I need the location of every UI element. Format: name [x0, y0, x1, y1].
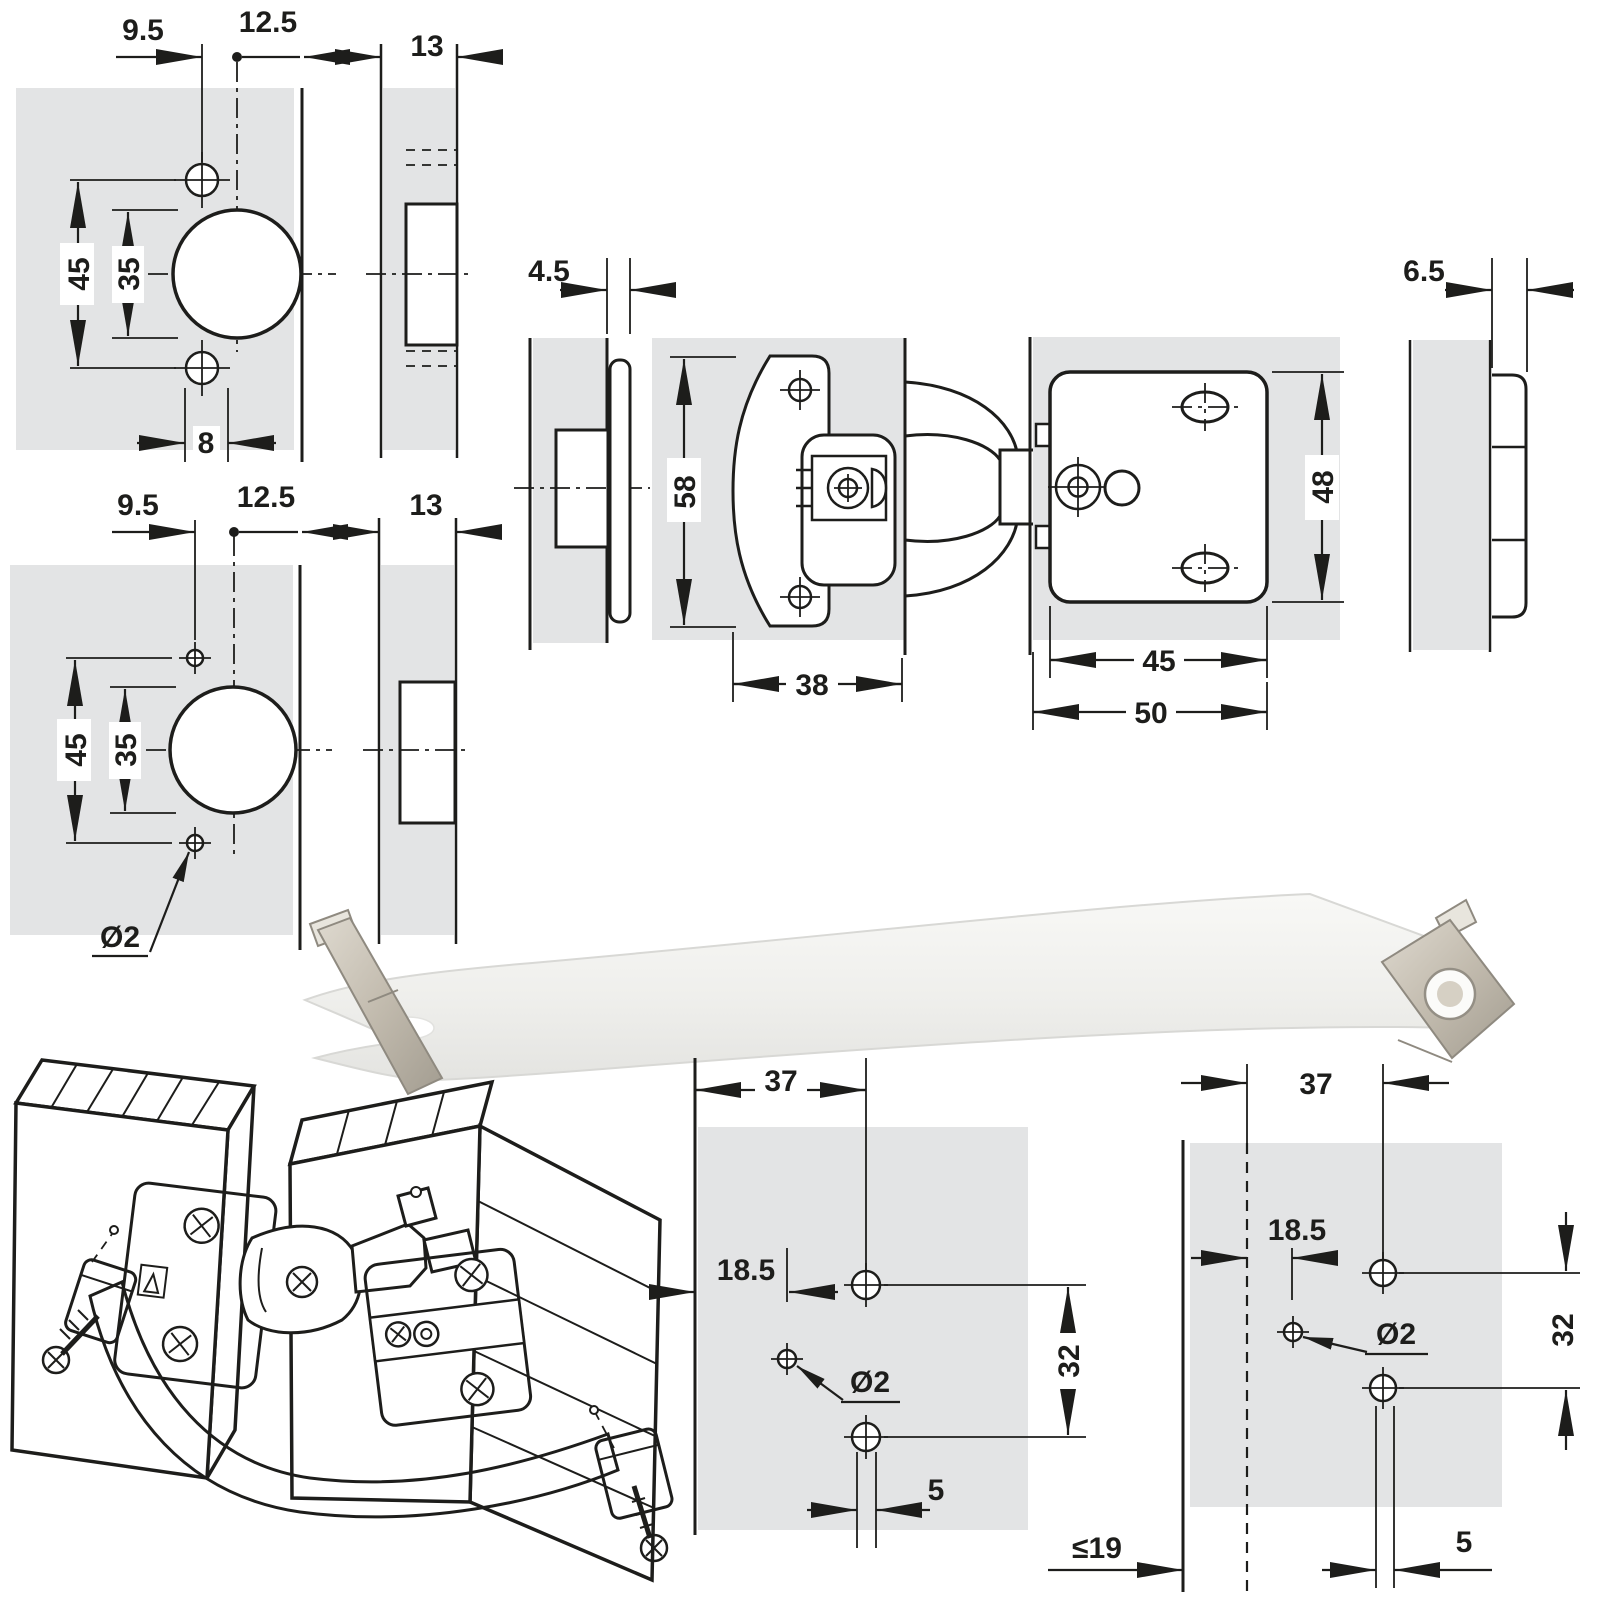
strap-drilling-cabinet-pattern: 37 18.5 Ø2 32 5 ≤19 — [1048, 1064, 1580, 1592]
dim-strap-cab-offset: 18.5 — [1268, 1214, 1326, 1247]
dim-edge-offset-top: 9.5 — [122, 14, 164, 47]
dim-door-thickness-top: 13 — [410, 30, 443, 63]
technical-drawing-page: 9.5 12.5 45 35 8 13 9.5 12.5 — [0, 0, 1600, 1600]
dim-strap-door-offset: 18.5 — [717, 1254, 775, 1287]
dim-pilot-diameter-bottom: Ø2 — [100, 921, 140, 954]
hinge-installation-drawing: 9.5 12.5 45 35 8 13 9.5 12.5 — [0, 0, 1600, 1600]
dim-strap-door-dia: Ø2 — [850, 1366, 890, 1399]
strap-band — [305, 894, 1455, 1080]
safety-strap-photo — [305, 894, 1514, 1094]
strap-drilling-door-pattern: 37 18.5 Ø2 32 5 — [652, 1058, 1086, 1548]
dim-cup-diameter-bottom: 35 — [110, 733, 143, 766]
dim-door-thickness-bottom: 13 — [409, 489, 442, 522]
dim-hole-spacing-bottom: 45 — [60, 733, 93, 766]
dim-strap-cab-width: 37 — [1299, 1068, 1332, 1101]
dim-strap-cab-gap: 5 — [1456, 1526, 1473, 1559]
hinge-assembly-view: 4.5 58 38 48 — [514, 255, 1574, 730]
cup-drilling-side-view-bottom: 13 — [344, 488, 490, 944]
dim-plate-height: 48 — [1307, 470, 1340, 503]
dim-strap-door-gap: 5 — [928, 1474, 945, 1507]
dim-strap-cab-spacing: 32 — [1547, 1313, 1580, 1346]
dim-max-panel-thickness: ≤19 — [1072, 1532, 1122, 1565]
cup-drilling-pattern-top: 9.5 12.5 45 35 8 — [16, 6, 358, 462]
dim-plate-overlay: 6.5 — [1403, 255, 1445, 288]
dim-screw-offset: 8 — [198, 427, 215, 460]
dim-plate-total-width: 50 — [1134, 697, 1167, 730]
dim-edge-offset-bottom: 9.5 — [117, 489, 159, 522]
dim-cup-to-edge-top: 12.5 — [239, 6, 297, 39]
dim-door-overlay: 4.5 — [528, 255, 570, 288]
cup-drilling-side-view-top: 13 — [346, 28, 492, 458]
dim-wing-depth: 38 — [795, 669, 828, 702]
dim-cup-to-edge-bottom: 12.5 — [237, 481, 295, 514]
cup-drilling-pattern-bottom: 9.5 12.5 45 35 Ø2 — [10, 481, 356, 956]
dim-strap-door-spacing: 32 — [1053, 1344, 1086, 1377]
dim-hole-spacing-top: 45 — [63, 257, 96, 290]
dim-strap-cab-dia: Ø2 — [1376, 1318, 1416, 1351]
dim-cup-diameter-top: 35 — [113, 257, 146, 290]
dim-strap-door-width: 37 — [764, 1065, 797, 1098]
installed-hinge-isometric — [12, 1060, 674, 1580]
dim-wing-height: 58 — [669, 475, 702, 508]
dim-plate-hole-width: 45 — [1142, 645, 1175, 678]
